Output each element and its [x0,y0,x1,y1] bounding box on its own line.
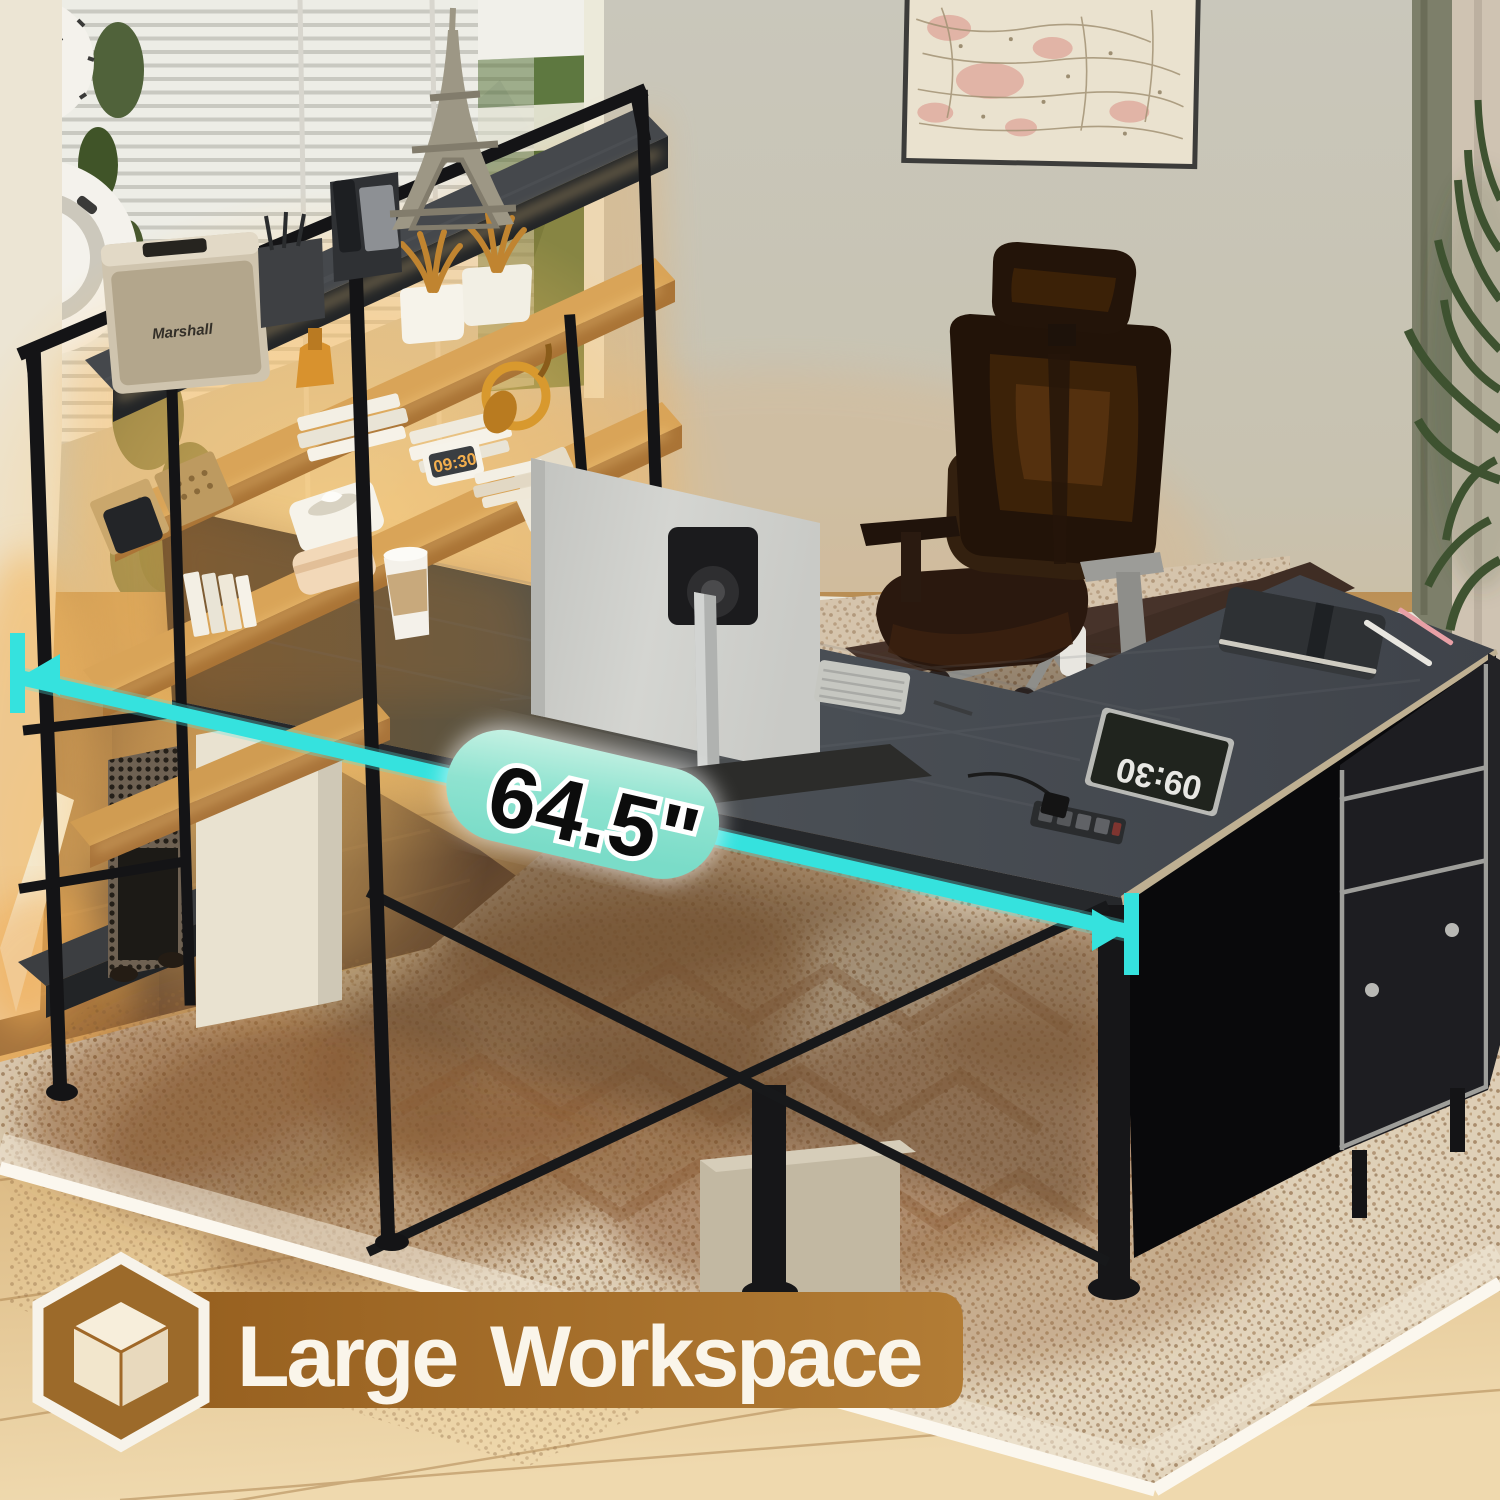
svg-text:LargeWorkspace: LargeWorkspace [237,1309,920,1405]
